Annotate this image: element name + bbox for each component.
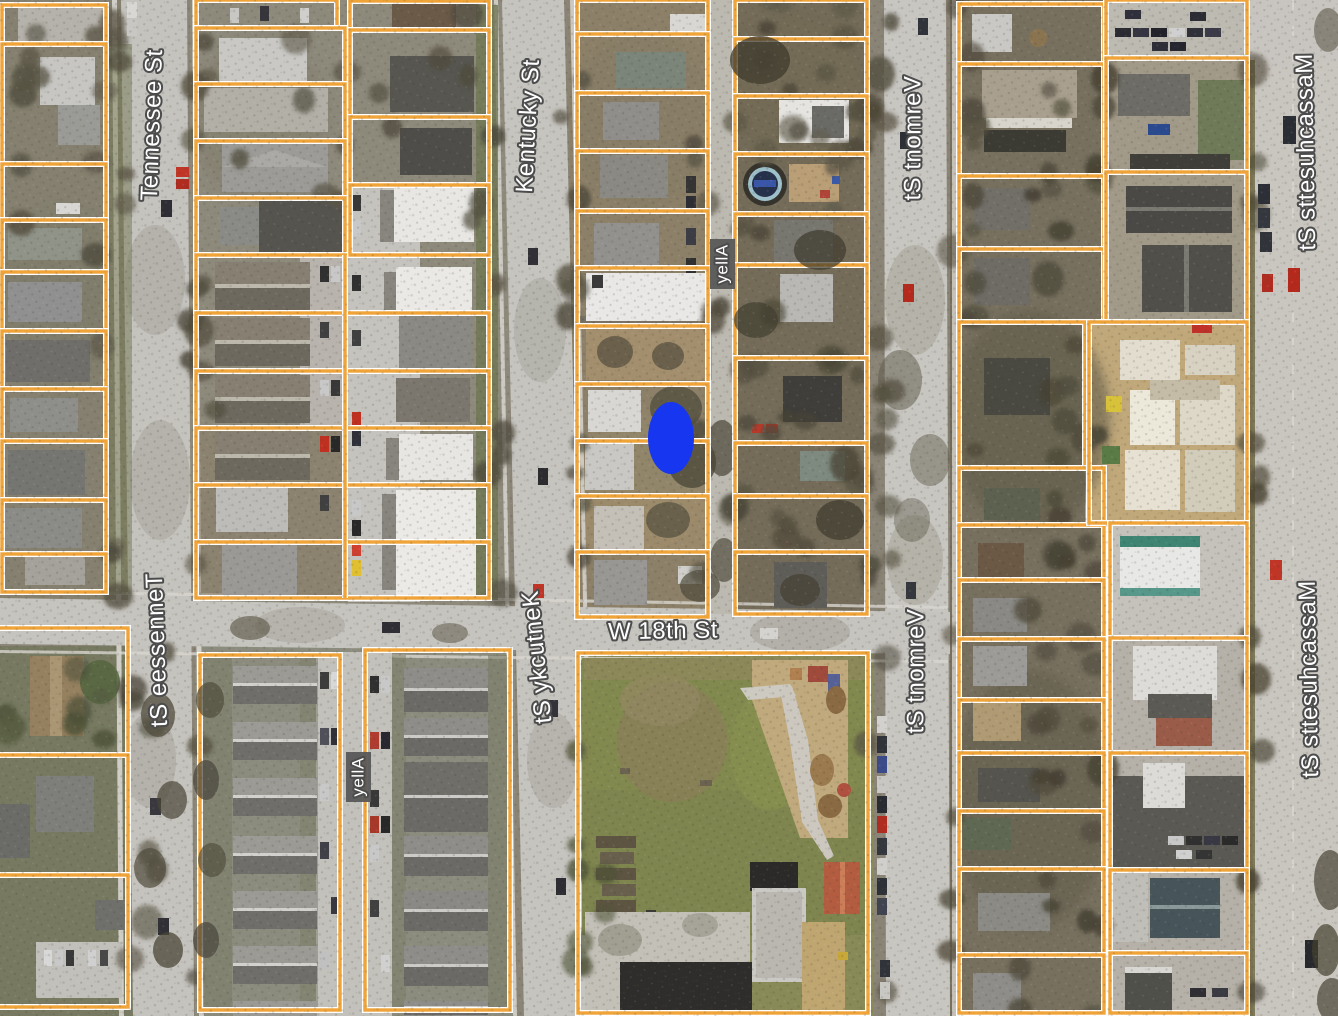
- svg-text:tS sttesuhcassaM: tS sttesuhcassaM: [1294, 580, 1324, 778]
- svg-text:yellA: yellA: [349, 757, 368, 797]
- svg-text:tS tnomreV: tS tnomreV: [903, 608, 930, 733]
- svg-text:yellA: yellA: [713, 244, 732, 284]
- svg-text:tS sttesuhcassaM: tS sttesuhcassaM: [1291, 53, 1321, 251]
- svg-text:Tennessee St: Tennessee St: [136, 49, 168, 201]
- svg-text:tS eessenneT: tS eessenneT: [141, 573, 173, 728]
- svg-text:tS tnomreV: tS tnomreV: [900, 75, 927, 200]
- svg-text:W 18th St: W 18th St: [608, 617, 718, 646]
